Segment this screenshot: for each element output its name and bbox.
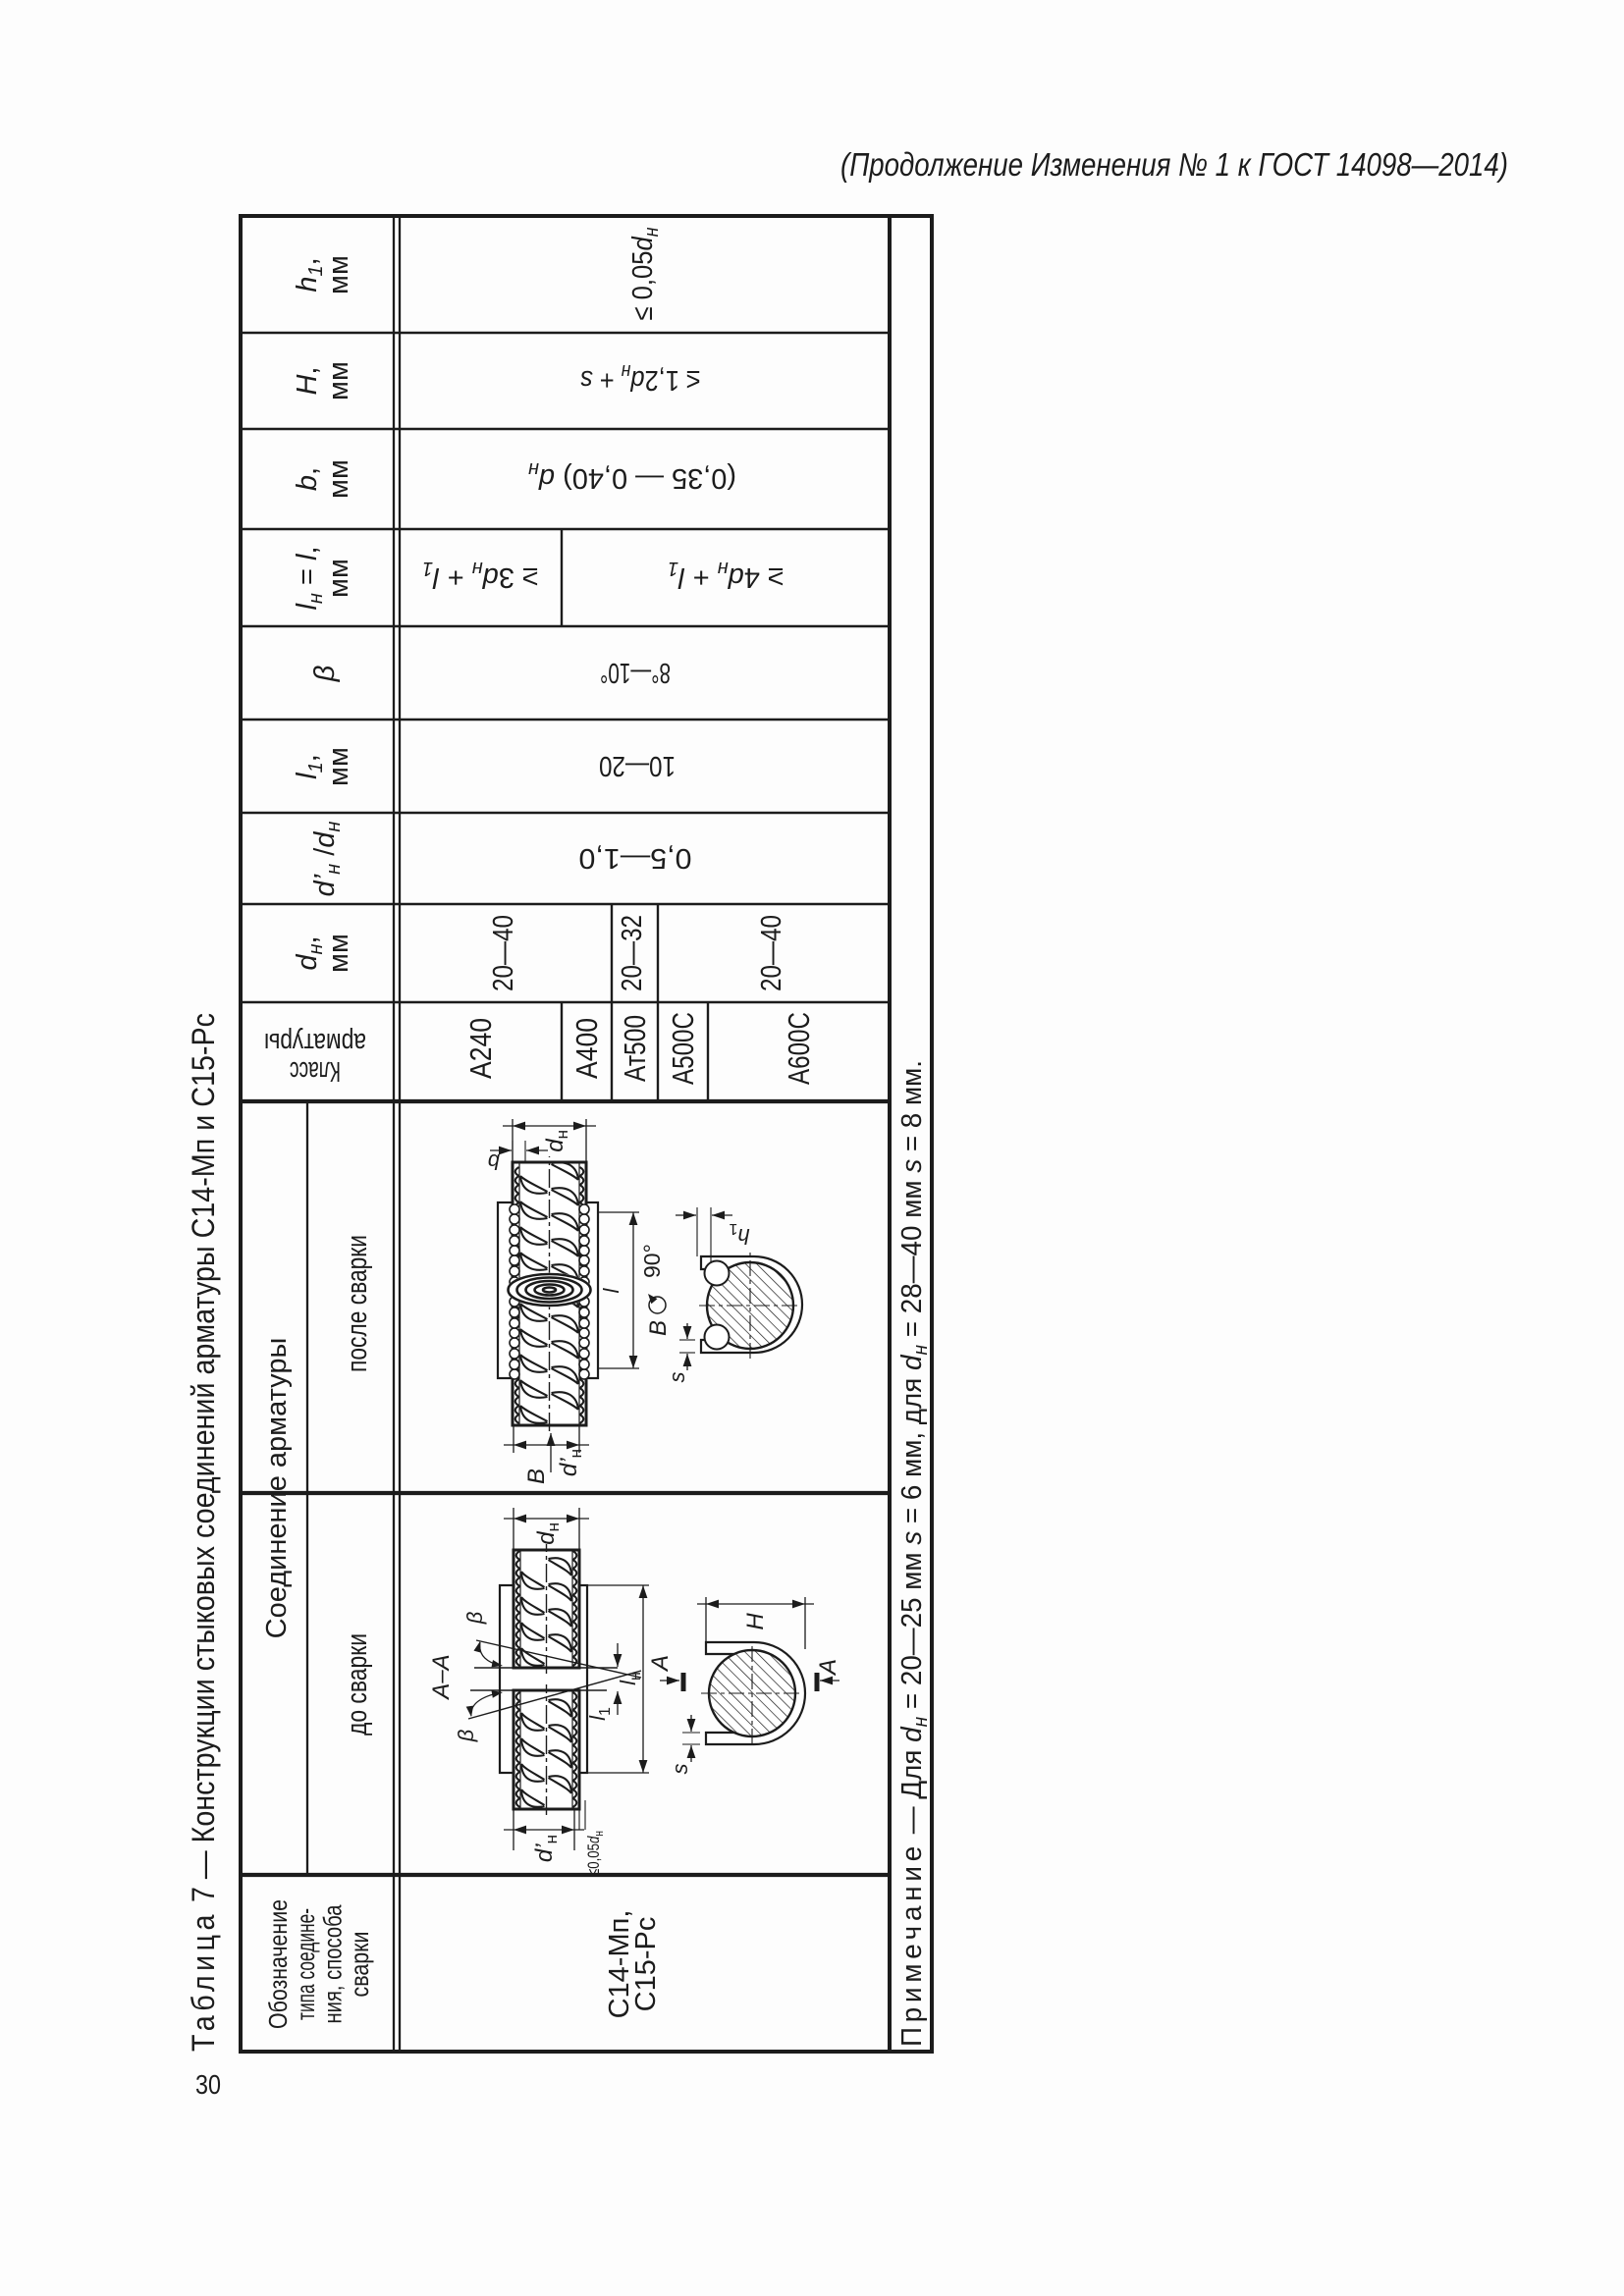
- svg-text:Соединение арматуры: Соединение арматуры: [261, 1338, 293, 1639]
- svg-text:до сварки: до сварки: [342, 1633, 373, 1735]
- svg-text:30: 30: [195, 2069, 221, 2100]
- svg-text:20—40: 20—40: [756, 915, 787, 991]
- svg-text:d’н​ /dн​: d’н​ /dн​: [309, 822, 345, 897]
- svg-text:20—32: 20—32: [617, 915, 648, 991]
- svg-text:0,5—1,0: 0,5—1,0: [579, 842, 692, 874]
- svg-text:(0,35 — 0,40) dн​: (0,35 — 0,40) dн​: [528, 458, 736, 494]
- svg-text:lн: lн: [616, 1672, 644, 1685]
- svg-text:20—40: 20—40: [488, 915, 519, 991]
- svg-text:dн: dн: [542, 1130, 571, 1152]
- svg-text:≥ 4dн​ + l1​: ≥ 4dн​ + l1​: [668, 558, 784, 593]
- svg-text:мм: мм: [323, 559, 354, 598]
- svg-text:h1​,: h1​,: [292, 257, 327, 292]
- svg-text:А–А: А–А: [428, 1654, 455, 1700]
- svg-text:d’н: d’н: [531, 1835, 561, 1862]
- svg-text:В: В: [523, 1468, 550, 1484]
- svg-text:h1: h1: [729, 1220, 749, 1249]
- svg-text:(Продолжение Изменения № 1 к Г: (Продолжение Изменения № 1 к ГОСТ 14098—…: [840, 146, 1508, 183]
- svg-text:dн: dн: [533, 1522, 563, 1545]
- svg-text:l1​,: l1​,: [292, 754, 327, 779]
- svg-text:β: β: [309, 666, 341, 683]
- svg-text:после сварки: после сварки: [342, 1235, 373, 1372]
- svg-text:мм: мм: [323, 459, 354, 499]
- svg-text:С14-Мп,С15-Рс: С14-Мп,С15-Рс: [604, 1910, 662, 2019]
- svg-text:s: s: [665, 1372, 689, 1383]
- svg-text:Примечание — Для dн​ = 20—25 м: Примечание — Для dн​ = 20—25 мм s = 6 мм…: [896, 1060, 932, 2047]
- svg-text:А500С: А500С: [666, 1012, 700, 1085]
- svg-text:мм: мм: [323, 255, 354, 294]
- svg-text:А240: А240: [463, 1018, 498, 1079]
- svg-text:H,: H,: [292, 366, 323, 395]
- svg-text:≥ 3dн​ + l1​: ≥ 3dн​ + l1​: [422, 558, 538, 593]
- svg-text:Ат500: Ат500: [618, 1015, 652, 1082]
- svg-text:мм: мм: [323, 361, 354, 400]
- svg-text:l1: l1: [585, 1707, 614, 1721]
- svg-text:b: b: [488, 1149, 500, 1174]
- svg-text:А: А: [647, 1655, 674, 1673]
- svg-text:H: H: [742, 1613, 769, 1630]
- svg-text:≤ 1,2dн​ + s: ≤ 1,2dн​ + s: [580, 360, 700, 396]
- svg-text:Таблица 7 — Конструкции стыков: Таблица 7 — Конструкции стыковых соедине…: [186, 1013, 221, 2052]
- svg-text:≤ 0,05dн​: ≤ 0,05dн​: [627, 228, 663, 321]
- svg-text:А: А: [815, 1659, 841, 1677]
- svg-text:dн​,: dн​,: [292, 935, 327, 970]
- svg-text:l: l: [599, 1287, 623, 1293]
- svg-text:10—20: 10—20: [599, 750, 676, 781]
- svg-text:≤0,05dн: ≤0,05dн: [584, 1831, 606, 1876]
- svg-text:Классарматуры: Классарматуры: [264, 1027, 366, 1087]
- svg-text:мм: мм: [323, 747, 354, 786]
- svg-text:s: s: [668, 1764, 692, 1775]
- svg-text:β: β: [454, 1729, 478, 1742]
- svg-text:Обозначениетипа соедине-ния, с: Обозначениетипа соедине-ния, способасвар…: [263, 1899, 374, 2029]
- svg-text:8°—10°: 8°—10°: [600, 657, 671, 688]
- svg-text:β: β: [462, 1611, 487, 1625]
- svg-text:b,: b,: [292, 467, 323, 491]
- svg-text:В: В: [645, 1320, 672, 1336]
- svg-text:90°: 90°: [639, 1244, 665, 1278]
- svg-text:lн​ = l,: lн​ = l,: [292, 546, 327, 610]
- svg-text:А600С: А600С: [782, 1012, 816, 1085]
- svg-text:мм: мм: [323, 934, 354, 973]
- svg-text:d’н: d’н: [556, 1449, 585, 1476]
- svg-text:А400: А400: [569, 1018, 604, 1079]
